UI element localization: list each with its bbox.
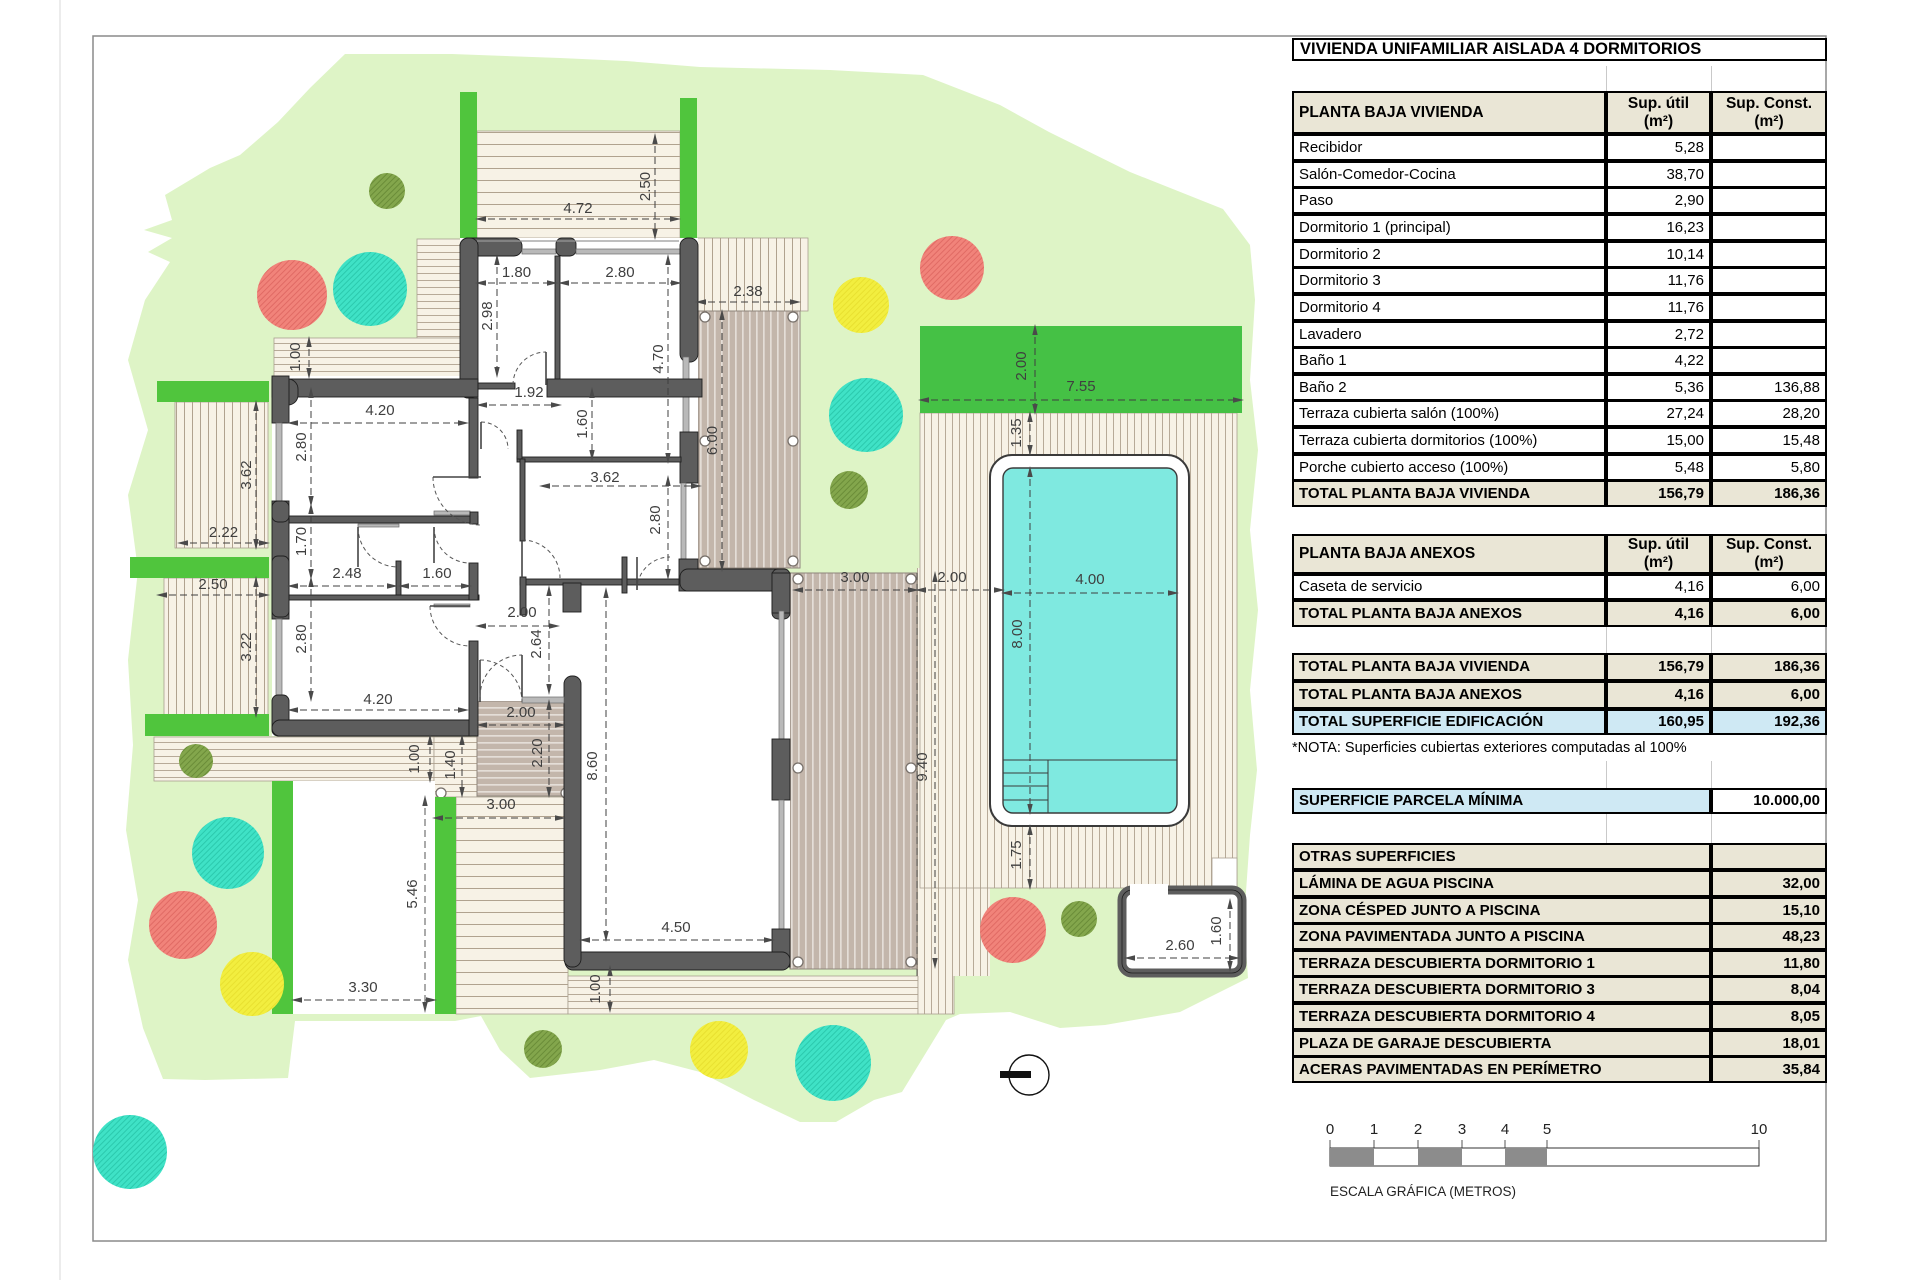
- svg-text:ESCALA GRÁFICA (METROS): ESCALA GRÁFICA (METROS): [1330, 1184, 1516, 1199]
- svg-text:8.00: 8.00: [1009, 619, 1026, 648]
- svg-text:1.35: 1.35: [1008, 418, 1025, 447]
- svg-text:2.00: 2.00: [1013, 351, 1030, 380]
- svg-text:6.00: 6.00: [704, 426, 721, 455]
- svg-text:2.00: 2.00: [937, 569, 966, 586]
- svg-text:1.60: 1.60: [574, 409, 591, 438]
- svg-text:7.55: 7.55: [1066, 378, 1095, 395]
- svg-text:5.46: 5.46: [404, 879, 421, 908]
- svg-text:3.62: 3.62: [238, 460, 255, 489]
- svg-text:2.50: 2.50: [637, 172, 654, 201]
- svg-text:1.75: 1.75: [1008, 840, 1025, 869]
- svg-text:4.00: 4.00: [1075, 571, 1104, 588]
- svg-text:2.80: 2.80: [647, 505, 664, 534]
- svg-text:1.00: 1.00: [287, 342, 304, 371]
- svg-text:2.64: 2.64: [528, 629, 545, 658]
- svg-text:1.60: 1.60: [1208, 916, 1225, 945]
- svg-text:2.50: 2.50: [198, 576, 227, 593]
- svg-text:2.22: 2.22: [209, 524, 238, 541]
- svg-text:3.00: 3.00: [486, 796, 515, 813]
- svg-text:1.00: 1.00: [587, 974, 604, 1003]
- svg-text:2.00: 2.00: [506, 704, 535, 721]
- svg-text:3.22: 3.22: [238, 632, 255, 661]
- svg-text:4.20: 4.20: [363, 691, 392, 708]
- svg-text:1.92: 1.92: [514, 384, 543, 401]
- svg-text:1.60: 1.60: [422, 565, 451, 582]
- svg-text:1: 1: [1370, 1121, 1378, 1138]
- svg-text:1.40: 1.40: [442, 750, 459, 779]
- svg-text:10: 10: [1751, 1121, 1768, 1138]
- svg-text:2.80: 2.80: [293, 624, 310, 653]
- svg-text:2.80: 2.80: [605, 264, 634, 281]
- svg-text:2.98: 2.98: [479, 301, 496, 330]
- svg-text:1.70: 1.70: [293, 527, 310, 556]
- svg-text:2.20: 2.20: [529, 738, 546, 767]
- svg-text:0: 0: [1326, 1121, 1334, 1138]
- svg-text:4.50: 4.50: [661, 919, 690, 936]
- svg-text:2.00: 2.00: [507, 604, 536, 621]
- svg-text:3.30: 3.30: [348, 979, 377, 996]
- svg-text:2.80: 2.80: [293, 432, 310, 461]
- svg-text:3: 3: [1458, 1121, 1466, 1138]
- svg-text:1.00: 1.00: [406, 744, 423, 773]
- svg-text:8.60: 8.60: [584, 751, 601, 780]
- svg-text:2: 2: [1414, 1121, 1422, 1138]
- svg-text:4: 4: [1501, 1121, 1509, 1138]
- svg-text:5: 5: [1543, 1121, 1551, 1138]
- svg-text:4.20: 4.20: [365, 402, 394, 419]
- svg-text:1.80: 1.80: [502, 264, 531, 281]
- svg-text:2.38: 2.38: [733, 283, 762, 300]
- svg-text:2.48: 2.48: [332, 565, 361, 582]
- svg-text:2.60: 2.60: [1165, 937, 1194, 954]
- svg-text:4.70: 4.70: [650, 344, 667, 373]
- svg-text:3.62: 3.62: [590, 469, 619, 486]
- svg-text:4.72: 4.72: [563, 200, 592, 217]
- svg-text:3.00: 3.00: [840, 569, 869, 586]
